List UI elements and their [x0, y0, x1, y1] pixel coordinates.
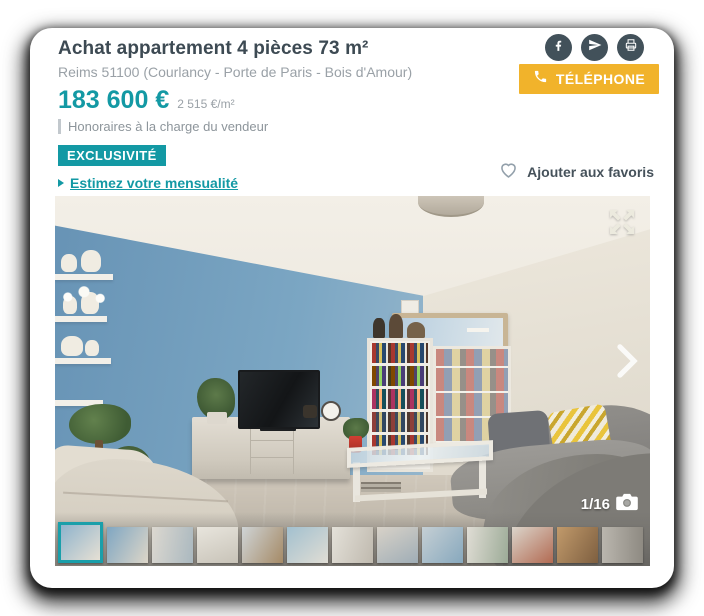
thumbnail[interactable]	[287, 527, 328, 563]
send-share-button[interactable]	[581, 34, 608, 61]
listing-header: Achat appartement 4 pièces 73 m² Reims 5…	[58, 38, 488, 191]
scene-table-books	[361, 482, 401, 492]
scene-tv	[238, 370, 320, 429]
scene-orchid	[57, 284, 111, 310]
thumbnail[interactable]	[242, 527, 283, 563]
scene-ornament	[81, 250, 101, 272]
listing-title: Achat appartement 4 pièces 73 m²	[58, 38, 488, 60]
favorites-label: Ajouter aux favoris	[527, 164, 654, 180]
scene-plant-pot	[207, 412, 227, 424]
add-to-favorites-button[interactable]: Ajouter aux favoris	[498, 159, 654, 185]
thumbnail[interactable]	[467, 527, 508, 563]
triangle-bullet-icon	[58, 179, 64, 187]
photo-counter-text: 1/16	[581, 496, 610, 513]
phone-button[interactable]: TÉLÉPHONE	[519, 64, 659, 94]
facebook-icon	[552, 39, 565, 57]
fees-note: Honoraires à la charge du vendeur	[58, 119, 488, 134]
thumbnail[interactable]	[107, 527, 148, 563]
photo-scene	[55, 196, 650, 566]
scene-clock	[321, 401, 341, 421]
scene-bonsai	[69, 404, 131, 444]
thumbnail[interactable]	[332, 527, 373, 563]
scene-ornament	[85, 340, 99, 356]
heart-icon	[498, 159, 519, 185]
estimate-link-label: Estimez votre mensualité	[70, 175, 238, 191]
exclusivity-badge: EXCLUSIVITÉ	[58, 145, 166, 166]
phone-icon	[533, 69, 548, 89]
scene-ornament	[61, 254, 77, 272]
listing-card: Achat appartement 4 pièces 73 m² Reims 5…	[30, 28, 674, 588]
thumbnail[interactable]	[557, 527, 598, 563]
scene-wall-shelf	[55, 274, 113, 280]
scene-wall-shelf	[55, 316, 107, 322]
thumbnail[interactable]	[377, 527, 418, 563]
thumbnail[interactable]	[197, 527, 238, 563]
fullscreen-button[interactable]	[606, 206, 638, 238]
price-per-sqm: 2 515 €/m²	[177, 97, 234, 113]
photo-counter: 1/16	[581, 493, 638, 516]
thumbnail[interactable]	[512, 527, 553, 563]
paper-plane-icon	[588, 38, 602, 57]
printer-icon	[624, 38, 638, 57]
listing-price: 183 600 €	[58, 88, 169, 113]
next-photo-button[interactable]	[610, 339, 644, 383]
thumbnail[interactable]	[602, 527, 643, 563]
phone-button-label: TÉLÉPHONE	[556, 71, 645, 87]
share-buttons	[545, 34, 644, 61]
expand-icon	[606, 225, 638, 242]
thumbnail[interactable]	[58, 522, 103, 563]
print-button[interactable]	[617, 34, 644, 61]
scene-wall-shelf	[55, 358, 111, 364]
scene-ornament	[61, 336, 83, 356]
estimate-monthly-link[interactable]: Estimez votre mensualité	[58, 175, 488, 191]
listing-location: Reims 51100 (Courlancy - Porte de Paris …	[58, 64, 488, 80]
scene-mirror-reflection	[467, 328, 489, 332]
main-photo[interactable]: 1/16	[55, 196, 650, 566]
scene-shelf-vase	[389, 314, 403, 338]
facebook-share-button[interactable]	[545, 34, 572, 61]
scene-shelf-vase	[407, 322, 425, 338]
camera-icon	[616, 493, 638, 516]
chevron-right-icon	[610, 370, 644, 387]
scene-shelf-vase	[373, 318, 385, 338]
scene-decor	[303, 405, 317, 418]
thumbnail[interactable]	[422, 527, 463, 563]
thumbnail[interactable]	[152, 527, 193, 563]
thumbnail-strip	[58, 522, 650, 563]
price-row: 183 600 € 2 515 €/m²	[58, 88, 488, 113]
